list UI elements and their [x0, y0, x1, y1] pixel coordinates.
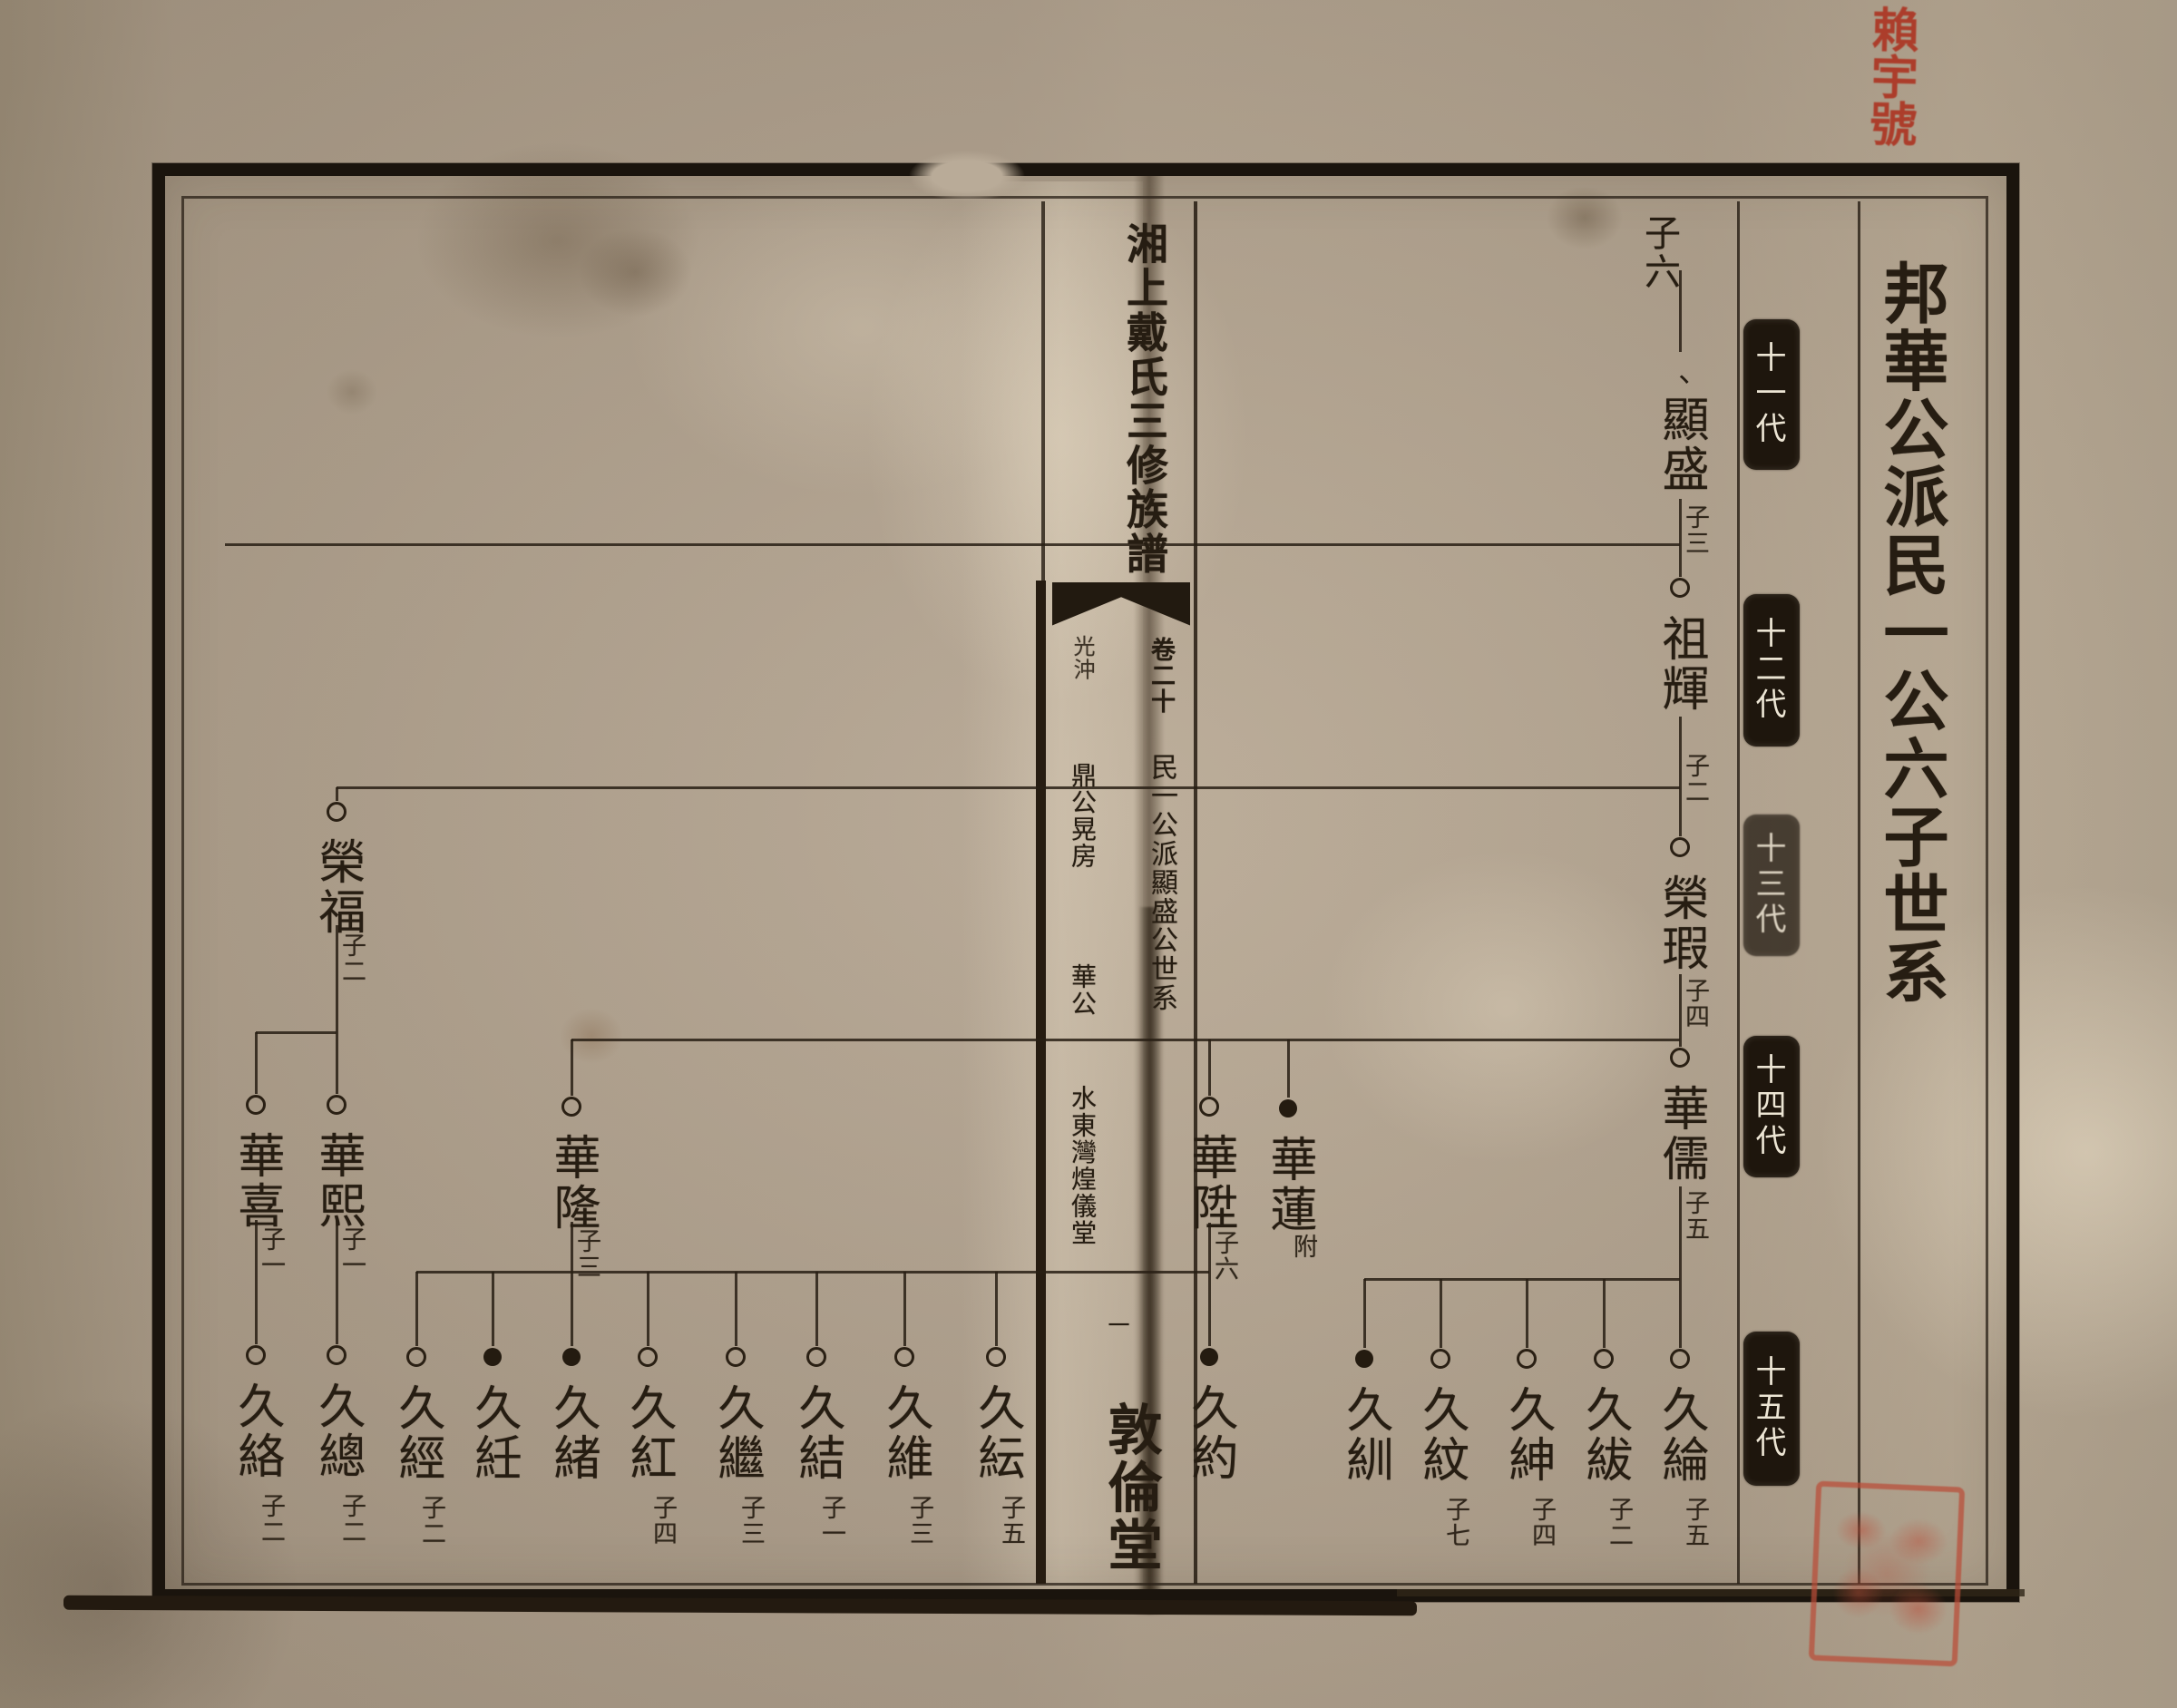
node-marker-filled-circle [1279, 1099, 1297, 1118]
red-seal-stamp [1809, 1481, 1965, 1667]
tree-node-son-count-label: 子二 [341, 1493, 370, 1575]
generation-label-box: 十二代 [1743, 594, 1800, 747]
tree-node-son-count-label: 子七 [1445, 1497, 1474, 1578]
tree-node-son-count-label: 子四 [652, 1495, 681, 1576]
tree-node-name: 久緒 [545, 1370, 598, 1497]
tree-descent-line [571, 1039, 573, 1096]
node-marker-open-circle [406, 1347, 426, 1367]
tree-node-name: 久紅 [621, 1370, 674, 1497]
generation-label: 十五代 [1753, 1355, 1790, 1461]
tree-node-son-count-label: 子二 [1684, 753, 1713, 834]
spine-volume-number: 卷二十 [1136, 637, 1179, 727]
tree-node-name: 久紳 [1500, 1371, 1553, 1498]
node-marker-open-circle [327, 1345, 347, 1365]
tree-node-name: 榮瑕 [1654, 860, 1706, 987]
generation-label: 十四代 [1753, 1053, 1790, 1159]
tree-node-name: 華蓮 [1262, 1121, 1314, 1248]
generation-label: 十二代 [1753, 617, 1790, 723]
tree-sibling-line [256, 1031, 337, 1034]
tree-node-name: 久約 [1183, 1370, 1235, 1497]
tree-sibling-line [1364, 1278, 1680, 1281]
generation-label-box: 十四代 [1743, 1036, 1800, 1177]
spine-left-rule-upper [1041, 201, 1045, 582]
tree-node-name: 祖輝 [1654, 600, 1706, 727]
generation-label-box: 十五代 [1743, 1332, 1800, 1486]
spine-left-rule-lower [1036, 581, 1046, 1584]
tree-node-name: 久維 [878, 1370, 931, 1497]
tree-sibling-line [571, 1039, 1680, 1041]
tree-descent-line [1363, 1279, 1366, 1348]
spine-book-title: 湘上戴氏三修族譜 [1069, 213, 1174, 585]
node-marker-open-circle [327, 1095, 347, 1115]
border-damage-patch [909, 151, 1025, 201]
tree-node-son-count-label: 子二 [421, 1495, 450, 1576]
tree-node-name: 華熙 [310, 1118, 363, 1244]
tree-descent-line [647, 1272, 649, 1346]
node-marker-open-circle [1670, 578, 1690, 598]
spine-hall-name: 敦倫堂 [1070, 1390, 1170, 1586]
generation-label: 十一代 [1753, 341, 1790, 447]
node-marker-open-circle [1517, 1349, 1537, 1369]
node-marker-open-circle [1430, 1349, 1450, 1369]
tree-node-name: 久紜 [970, 1370, 1022, 1497]
tree-descent-line [492, 1272, 494, 1346]
tree-descent-line [995, 1272, 998, 1346]
tree-node-name: 久紝 [466, 1370, 519, 1497]
tree-descent-line [1526, 1279, 1528, 1348]
tree-node-son-count-label: 子四 [1684, 978, 1713, 1059]
tree-descent-line [735, 1272, 737, 1346]
tree-descent-line [815, 1272, 818, 1346]
node-marker-open-circle [726, 1347, 746, 1367]
genealogy-page-scan: 湘上戴氏三修族譜 卷二十 光沖 民一公派顯盛公世系 鼎公晃房 華公 水東灣煌儀堂… [0, 0, 2177, 1708]
tree-node-name: 華隆 [545, 1119, 598, 1246]
tree-node-son-count-label: 子一 [260, 1226, 289, 1308]
spine-compiler-note: 光沖 [1059, 635, 1098, 717]
node-marker-open-circle [1670, 1349, 1690, 1369]
tree-descent-line [1287, 1039, 1290, 1098]
tree-node-son-count-label: 子五 [1684, 1497, 1713, 1578]
tree-node-son-count-label: 子三 [740, 1495, 769, 1576]
generation-label-box: 十三代 [1743, 815, 1800, 956]
tree-node-son-count-label: 子二 [1608, 1497, 1637, 1578]
tree-node-son-count-label: 子六 [1214, 1230, 1243, 1312]
red-handwritten-label: 賴宇號 [1865, 5, 1926, 170]
tree-node-name: 久紱 [1577, 1371, 1630, 1498]
tree-sibling-line [337, 786, 1680, 789]
tree-node-name: 華儒 [1654, 1070, 1706, 1197]
tree-node-name: 久紃 [1338, 1371, 1391, 1498]
tree-node-son-count-label: 子一 [341, 1226, 370, 1308]
tree-node-son-count-label: 子五 [1001, 1495, 1030, 1576]
tree-node-son-count-label: 子三 [576, 1228, 605, 1310]
tree-node-son-count-label: 子二 [341, 932, 370, 1014]
node-marker-filled-circle [1355, 1350, 1373, 1368]
generation-label: 十三代 [1753, 832, 1790, 938]
node-marker-filled-circle [1200, 1348, 1218, 1366]
node-marker-open-circle [806, 1347, 826, 1367]
tree-descent-line [255, 1032, 258, 1094]
tree-descent-line [1603, 1279, 1606, 1348]
node-marker-filled-circle [562, 1348, 581, 1366]
node-marker-open-circle [986, 1347, 1006, 1367]
tree-descent-line [336, 787, 338, 801]
tree-node-name: 久經 [390, 1370, 443, 1497]
spine-page-number: 一 [1105, 1313, 1132, 1344]
spine-lineage-line: 民一公派顯盛公世系 [1134, 753, 1181, 1143]
tree-node-name: 久總 [310, 1368, 363, 1495]
panel-divider-rule-right [1858, 201, 1860, 1584]
tree-descent-line [1440, 1279, 1442, 1348]
spine-branch-note-3: 水東灣煌儀堂 [1058, 1085, 1099, 1332]
node-marker-open-circle [246, 1345, 266, 1365]
tree-node-son-count-label: 子一 [821, 1495, 850, 1576]
origin-son-rank-marker: 子六 [1644, 214, 1685, 323]
tree-node-son-count-label: 子三 [1684, 504, 1713, 586]
tree-descent-line [903, 1272, 906, 1346]
tree-node-son-count-label: 子三 [909, 1495, 938, 1576]
spine-branch-note-2: 華公 [1058, 963, 1099, 1050]
tree-node-son-count-label: 子二 [260, 1493, 289, 1575]
node-marker-open-circle [1670, 837, 1690, 857]
tree-sibling-line [416, 1271, 1209, 1274]
generation-label-box: 十一代 [1743, 319, 1800, 470]
tree-descent-line [415, 1272, 418, 1346]
tree-node-name: 久結 [790, 1370, 843, 1497]
node-marker-open-circle [327, 802, 347, 822]
tree-node-name: 久絡 [229, 1368, 282, 1495]
tree-node-son-count-label: 附 [1293, 1234, 1322, 1315]
tree-node-name: 華陞 [1183, 1119, 1235, 1246]
tree-descent-line [1208, 1039, 1211, 1096]
node-marker-open-circle [1670, 1048, 1690, 1068]
tree-node-son-count-label: 子四 [1531, 1497, 1560, 1578]
tree-node-name: 顯盛 [1654, 381, 1706, 508]
node-marker-open-circle [638, 1347, 658, 1367]
tree-node-name: 榮福 [310, 824, 363, 951]
node-marker-open-circle [246, 1095, 266, 1115]
lineage-chart-title: 邦華公派民一公六子世系 [1870, 207, 1957, 1059]
tree-sibling-line [225, 543, 1680, 546]
node-marker-filled-circle [483, 1348, 502, 1366]
tree-node-name: 華喜 [229, 1118, 282, 1244]
tree-node-son-count-label: 子五 [1684, 1190, 1713, 1272]
tree-node-name: 久綸 [1654, 1371, 1706, 1498]
node-marker-open-circle [1594, 1349, 1614, 1369]
panel-divider-rule-left [1737, 201, 1740, 1584]
tree-node-name: 久繼 [709, 1370, 762, 1497]
tree-node-name: 久紋 [1414, 1371, 1467, 1498]
node-marker-open-circle [894, 1347, 914, 1367]
node-marker-open-circle [1199, 1097, 1219, 1117]
node-marker-open-circle [561, 1097, 581, 1117]
